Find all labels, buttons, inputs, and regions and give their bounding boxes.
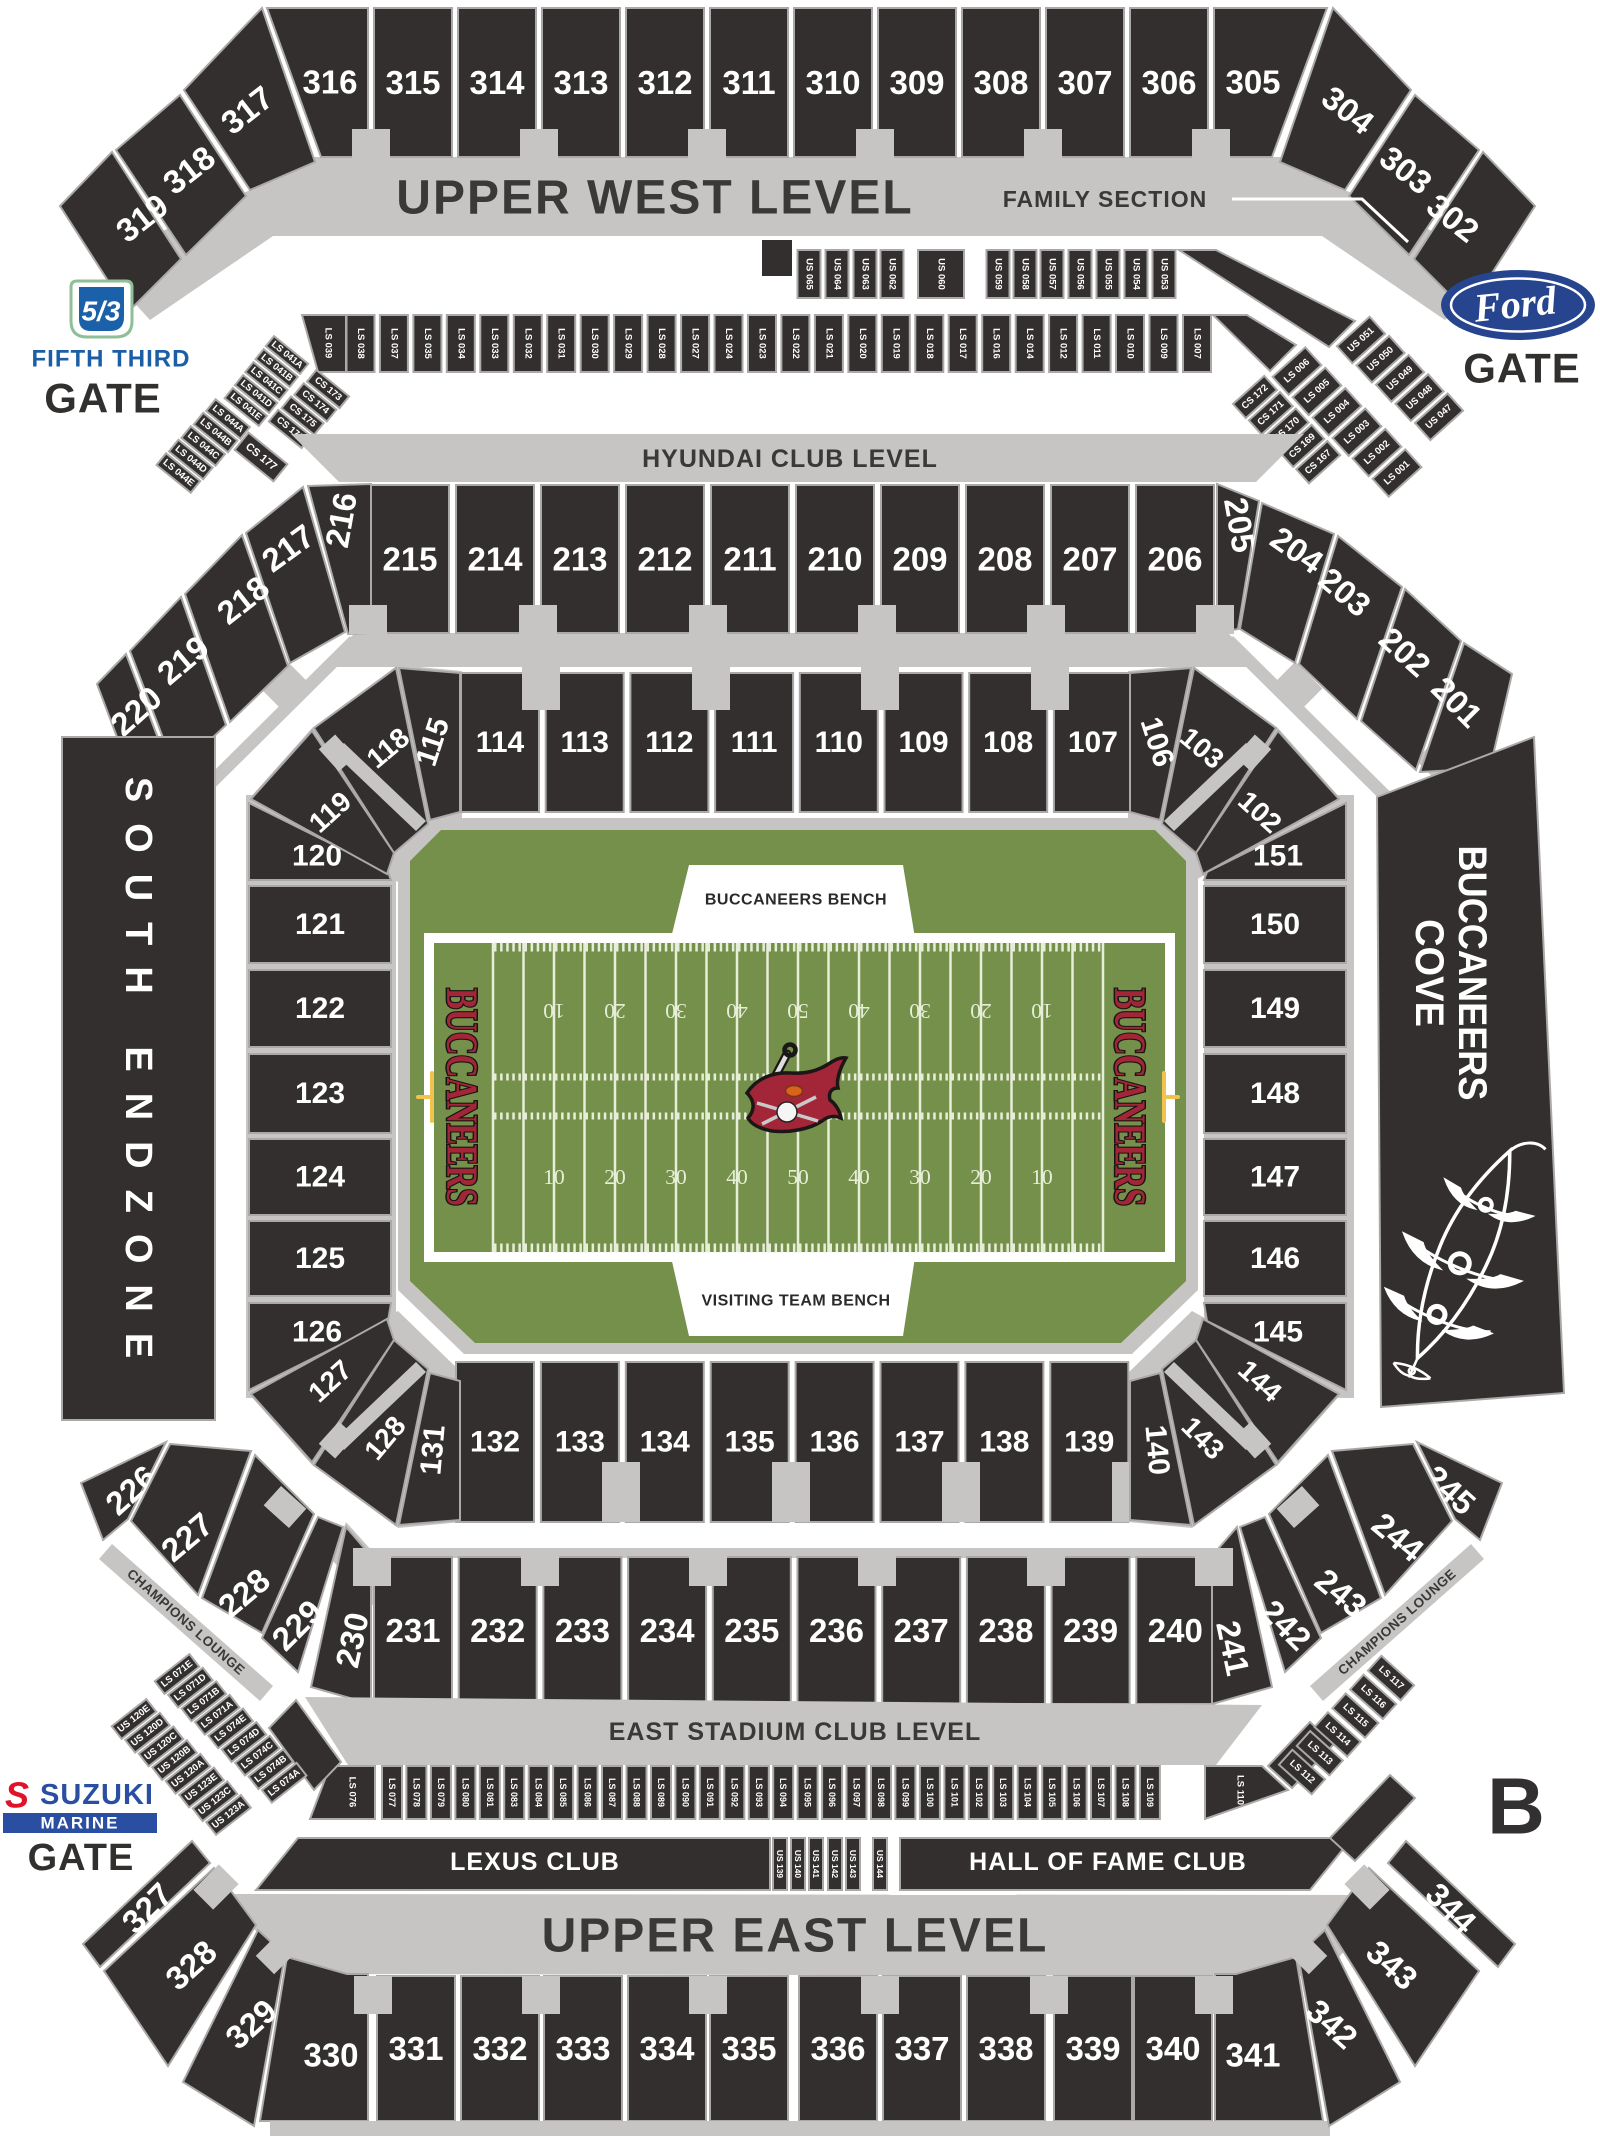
svg-text:314: 314 (469, 64, 525, 101)
svg-text:LS 101: LS 101 (949, 1778, 959, 1807)
svg-text:LS 079: LS 079 (436, 1778, 446, 1807)
svg-text:LS 028: LS 028 (656, 328, 667, 359)
svg-text:LS 097: LS 097 (852, 1778, 862, 1807)
svg-text:LS 109: LS 109 (1145, 1778, 1155, 1807)
svg-text:LS 091: LS 091 (705, 1778, 715, 1807)
svg-text:LS 085: LS 085 (558, 1778, 568, 1807)
svg-text:FAMILY SECTION: FAMILY SECTION (1003, 186, 1207, 212)
svg-text:126: 126 (292, 1316, 342, 1349)
svg-text:US 142: US 142 (830, 1850, 840, 1879)
svg-text:B: B (1487, 1762, 1545, 1851)
svg-text:LS 090: LS 090 (680, 1778, 690, 1807)
svg-text:137: 137 (894, 1426, 944, 1459)
svg-text:US 141: US 141 (811, 1850, 821, 1879)
svg-text:107: 107 (1068, 726, 1118, 759)
svg-text:LS 020: LS 020 (857, 328, 868, 359)
svg-text:151: 151 (1253, 840, 1303, 873)
svg-text:305: 305 (1225, 64, 1280, 101)
svg-text:315: 315 (385, 64, 440, 101)
svg-text:337: 337 (894, 2030, 949, 2067)
svg-text:UPPER WEST LEVEL: UPPER WEST LEVEL (396, 172, 913, 225)
svg-text:207: 207 (1062, 541, 1117, 578)
svg-text:134: 134 (640, 1426, 690, 1459)
svg-text:20: 20 (970, 1165, 992, 1189)
svg-text:LS 096: LS 096 (827, 1778, 837, 1807)
svg-text:146: 146 (1250, 1242, 1300, 1275)
svg-text:10: 10 (543, 999, 565, 1023)
svg-text:UPPER EAST LEVEL: UPPER EAST LEVEL (542, 1910, 1049, 1963)
svg-text:SOUTH ENDZONE: SOUTH ENDZONE (117, 777, 159, 1379)
svg-text:LS 021: LS 021 (823, 328, 834, 359)
svg-text:206: 206 (1147, 541, 1202, 578)
svg-text:BUCCANEERS: BUCCANEERS (1450, 846, 1494, 1101)
svg-text:312: 312 (637, 64, 692, 101)
svg-text:LS 038: LS 038 (355, 328, 366, 359)
svg-text:US 056: US 056 (1075, 258, 1086, 290)
svg-text:LS 081: LS 081 (485, 1778, 495, 1807)
svg-text:332: 332 (472, 2030, 527, 2067)
svg-text:LS 031: LS 031 (556, 328, 567, 359)
svg-text:US 065: US 065 (804, 258, 815, 290)
svg-text:LS 009: LS 009 (1158, 328, 1169, 359)
svg-text:5/3: 5/3 (82, 296, 121, 327)
svg-text:145: 145 (1253, 1316, 1303, 1349)
svg-text:311: 311 (722, 64, 775, 101)
svg-text:20: 20 (604, 1165, 626, 1189)
svg-text:234: 234 (640, 1612, 696, 1649)
svg-text:LS 019: LS 019 (890, 328, 901, 359)
svg-text:341: 341 (1225, 2037, 1280, 2074)
svg-text:LS 087: LS 087 (607, 1778, 617, 1807)
svg-text:LS 027: LS 027 (690, 328, 701, 359)
svg-text:340: 340 (1145, 2030, 1200, 2067)
svg-text:LS 084: LS 084 (534, 1778, 544, 1807)
svg-text:LS 039: LS 039 (323, 328, 334, 359)
svg-text:HYUNDAI CLUB LEVEL: HYUNDAI CLUB LEVEL (642, 445, 938, 473)
svg-text:131: 131 (414, 1424, 451, 1477)
svg-text:LS 022: LS 022 (790, 328, 801, 359)
svg-text:LS 088: LS 088 (632, 1778, 642, 1807)
svg-text:114: 114 (476, 726, 525, 759)
svg-text:US 064: US 064 (832, 258, 843, 290)
svg-text:GATE: GATE (28, 1837, 135, 1879)
svg-text:307: 307 (1057, 64, 1112, 101)
svg-text:40: 40 (848, 1165, 870, 1189)
svg-text:110: 110 (815, 726, 863, 759)
svg-text:US 057: US 057 (1047, 258, 1058, 290)
svg-text:LS 032: LS 032 (522, 328, 533, 359)
svg-text:LS 024: LS 024 (723, 328, 734, 359)
svg-text:112: 112 (645, 726, 693, 759)
svg-text:147: 147 (1250, 1161, 1300, 1194)
svg-text:LS 095: LS 095 (803, 1778, 813, 1807)
svg-text:108: 108 (983, 726, 1033, 759)
svg-text:237: 237 (894, 1612, 949, 1649)
svg-text:Ford: Ford (1471, 277, 1559, 331)
svg-text:310: 310 (805, 64, 860, 101)
svg-text:338: 338 (978, 2030, 1033, 2067)
svg-text:30: 30 (909, 1165, 931, 1189)
svg-text:10: 10 (1031, 1165, 1053, 1189)
svg-text:308: 308 (973, 64, 1028, 101)
svg-text:SUZUKI: SUZUKI (40, 1779, 154, 1811)
svg-text:MARINE: MARINE (40, 1814, 119, 1833)
svg-text:313: 313 (553, 64, 608, 101)
svg-text:LS 011: LS 011 (1091, 328, 1102, 359)
svg-text:336: 336 (810, 2030, 865, 2067)
svg-text:40: 40 (726, 1165, 748, 1189)
svg-text:211: 211 (723, 541, 776, 578)
svg-text:US 054: US 054 (1131, 258, 1142, 290)
svg-text:232: 232 (470, 1612, 525, 1649)
svg-text:111: 111 (731, 726, 778, 759)
svg-text:US 139: US 139 (775, 1850, 785, 1879)
svg-text:LS 018: LS 018 (924, 328, 935, 359)
svg-text:20: 20 (604, 999, 626, 1023)
svg-text:30: 30 (909, 999, 931, 1023)
svg-text:LS 102: LS 102 (974, 1778, 984, 1807)
svg-text:FIFTH THIRD: FIFTH THIRD (32, 346, 191, 373)
svg-text:148: 148 (1250, 1077, 1300, 1110)
svg-text:LS 089: LS 089 (656, 1778, 666, 1807)
svg-text:138: 138 (979, 1426, 1029, 1459)
svg-text:S: S (5, 1775, 29, 1816)
svg-text:LS 093: LS 093 (754, 1778, 764, 1807)
svg-text:LS 014: LS 014 (1024, 328, 1035, 359)
svg-text:330: 330 (303, 2037, 358, 2074)
svg-text:140: 140 (1138, 1424, 1175, 1477)
svg-text:LS 017: LS 017 (957, 328, 968, 359)
svg-text:LS 035: LS 035 (422, 328, 433, 359)
svg-text:LS 092: LS 092 (729, 1778, 739, 1807)
svg-text:212: 212 (637, 541, 692, 578)
svg-text:40: 40 (726, 999, 748, 1023)
svg-text:236: 236 (809, 1612, 864, 1649)
svg-text:215: 215 (382, 541, 437, 578)
svg-text:LS 077: LS 077 (387, 1778, 397, 1807)
svg-text:LS 078: LS 078 (411, 1778, 421, 1807)
svg-text:US 053: US 053 (1159, 258, 1170, 290)
svg-text:109: 109 (898, 726, 948, 759)
svg-text:US 140: US 140 (793, 1850, 803, 1879)
svg-text:135: 135 (725, 1426, 775, 1459)
svg-text:LS 030: LS 030 (589, 328, 600, 359)
svg-text:LS 034: LS 034 (455, 328, 466, 359)
svg-text:HALL OF FAME CLUB: HALL OF FAME CLUB (969, 1848, 1247, 1876)
svg-text:331: 331 (388, 2030, 443, 2067)
svg-text:20: 20 (970, 999, 992, 1023)
svg-text:LS 080: LS 080 (460, 1778, 470, 1807)
svg-text:40: 40 (848, 999, 870, 1023)
svg-text:210: 210 (807, 541, 862, 578)
svg-text:LS 083: LS 083 (509, 1778, 519, 1807)
svg-text:US 058: US 058 (1020, 258, 1031, 290)
svg-text:LS 108: LS 108 (1121, 1778, 1131, 1807)
svg-text:50: 50 (787, 1165, 809, 1189)
svg-text:10: 10 (1031, 999, 1053, 1023)
svg-text:LEXUS CLUB: LEXUS CLUB (450, 1848, 620, 1876)
svg-text:335: 335 (721, 2030, 776, 2067)
svg-text:214: 214 (467, 541, 523, 578)
svg-text:US 060: US 060 (936, 258, 947, 290)
svg-text:30: 30 (665, 1165, 687, 1189)
svg-text:GATE: GATE (1463, 345, 1581, 392)
svg-text:LS 103: LS 103 (998, 1778, 1008, 1807)
svg-text:136: 136 (810, 1426, 860, 1459)
svg-text:US 055: US 055 (1103, 258, 1114, 290)
svg-text:240: 240 (1148, 1612, 1203, 1649)
svg-text:LS 086: LS 086 (583, 1778, 593, 1807)
svg-text:LS 076: LS 076 (347, 1777, 358, 1808)
svg-text:LS 106: LS 106 (1072, 1778, 1082, 1807)
svg-text:124: 124 (295, 1161, 345, 1194)
svg-text:LS 110: LS 110 (1235, 1775, 1246, 1805)
svg-text:150: 150 (1250, 908, 1300, 941)
svg-text:LS 007: LS 007 (1192, 328, 1203, 359)
svg-text:334: 334 (639, 2030, 695, 2067)
svg-text:BUCCANEERS BENCH: BUCCANEERS BENCH (705, 892, 887, 909)
svg-text:COVE: COVE (1407, 919, 1451, 1027)
svg-text:133: 133 (555, 1426, 605, 1459)
svg-text:US 144: US 144 (875, 1850, 885, 1879)
svg-text:333: 333 (555, 2030, 610, 2067)
svg-text:309: 309 (889, 64, 944, 101)
svg-text:GATE: GATE (44, 375, 162, 422)
svg-text:VISITING TEAM BENCH: VISITING TEAM BENCH (701, 1293, 890, 1310)
svg-text:121: 121 (295, 908, 345, 941)
svg-text:US 059: US 059 (993, 258, 1004, 290)
svg-text:306: 306 (1141, 64, 1196, 101)
svg-text:213: 213 (552, 541, 607, 578)
svg-text:LS 023: LS 023 (757, 328, 768, 359)
svg-text:BUCCANEERS: BUCCANEERS (1106, 988, 1155, 1206)
svg-text:LS 010: LS 010 (1125, 328, 1136, 359)
svg-text:LS 033: LS 033 (489, 328, 500, 359)
svg-text:233: 233 (555, 1612, 610, 1649)
svg-text:EAST STADIUM CLUB LEVEL: EAST STADIUM CLUB LEVEL (609, 1718, 982, 1746)
svg-text:235: 235 (724, 1612, 779, 1649)
svg-text:10: 10 (543, 1165, 565, 1189)
svg-text:209: 209 (892, 541, 947, 578)
svg-text:113: 113 (560, 726, 608, 759)
svg-text:239: 239 (1063, 1612, 1118, 1649)
svg-text:LS 094: LS 094 (778, 1778, 788, 1807)
svg-text:149: 149 (1250, 992, 1300, 1025)
svg-text:132: 132 (470, 1426, 520, 1459)
svg-text:LS 100: LS 100 (925, 1778, 935, 1807)
svg-text:238: 238 (978, 1612, 1033, 1649)
svg-text:LS 105: LS 105 (1047, 1778, 1057, 1807)
svg-text:123: 123 (295, 1077, 345, 1110)
svg-text:US 143: US 143 (848, 1850, 858, 1879)
svg-text:122: 122 (295, 992, 345, 1025)
svg-text:339: 339 (1065, 2030, 1120, 2067)
svg-text:LS 098: LS 098 (876, 1778, 886, 1807)
svg-text:LS 037: LS 037 (388, 328, 399, 359)
svg-text:LS 099: LS 099 (900, 1778, 910, 1807)
svg-text:LS 016: LS 016 (991, 328, 1002, 359)
svg-text:US 062: US 062 (887, 258, 898, 290)
svg-text:125: 125 (295, 1242, 345, 1275)
svg-text:BUCCANEERS: BUCCANEERS (438, 988, 487, 1206)
svg-text:30: 30 (665, 999, 687, 1023)
svg-text:208: 208 (977, 541, 1032, 578)
svg-text:LS 029: LS 029 (623, 328, 634, 359)
svg-text:LS 104: LS 104 (1023, 1778, 1033, 1807)
svg-text:US 063: US 063 (860, 258, 871, 290)
svg-text:139: 139 (1064, 1426, 1114, 1459)
svg-text:50: 50 (787, 999, 809, 1023)
svg-text:LS 012: LS 012 (1058, 328, 1069, 359)
svg-text:LS 107: LS 107 (1096, 1778, 1106, 1807)
svg-text:231: 231 (385, 1612, 440, 1649)
svg-text:316: 316 (302, 64, 357, 101)
